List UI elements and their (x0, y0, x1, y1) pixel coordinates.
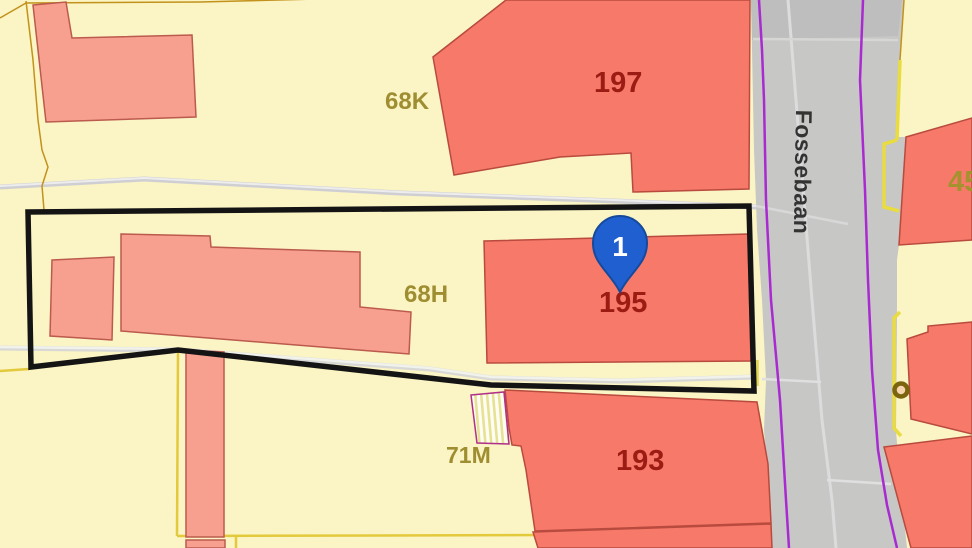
svg-text:68K: 68K (385, 88, 430, 115)
svg-text:197: 197 (594, 67, 642, 99)
svg-text:1: 1 (612, 231, 628, 262)
svg-text:71M: 71M (446, 442, 491, 468)
svg-text:45: 45 (948, 166, 972, 198)
svg-text:193: 193 (616, 445, 664, 477)
svg-text:Fossebaan: Fossebaan (789, 109, 817, 234)
svg-text:68H: 68H (404, 281, 448, 308)
svg-text:195: 195 (599, 287, 647, 319)
